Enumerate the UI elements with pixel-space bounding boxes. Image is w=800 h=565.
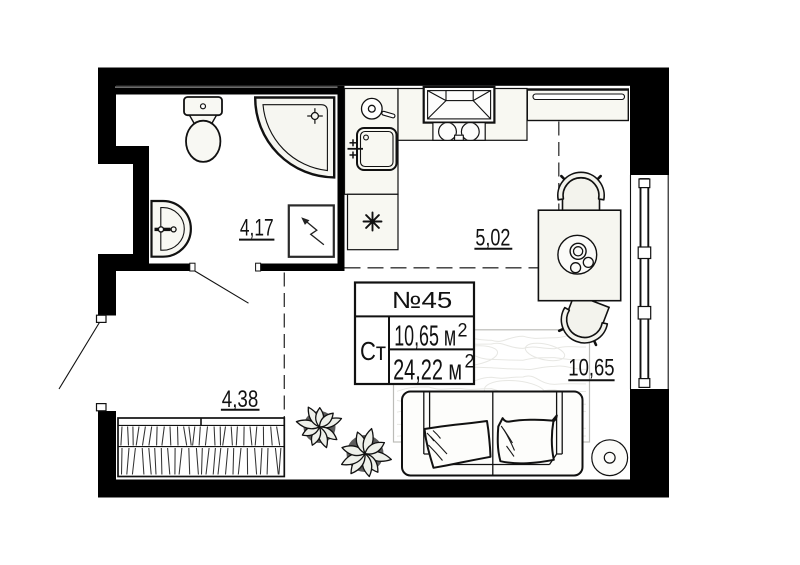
svg-text:10,65: 10,65 <box>568 356 614 382</box>
svg-text:2: 2 <box>465 351 475 373</box>
svg-text:10,65 м: 10,65 м <box>394 320 456 352</box>
svg-text:№45: №45 <box>392 287 453 313</box>
svg-text:2: 2 <box>458 320 468 342</box>
svg-text:Ст: Ст <box>360 336 386 366</box>
svg-text:5,02: 5,02 <box>475 226 510 252</box>
svg-text:24,22 м: 24,22 м <box>393 354 462 386</box>
svg-text:4,17: 4,17 <box>240 216 274 242</box>
